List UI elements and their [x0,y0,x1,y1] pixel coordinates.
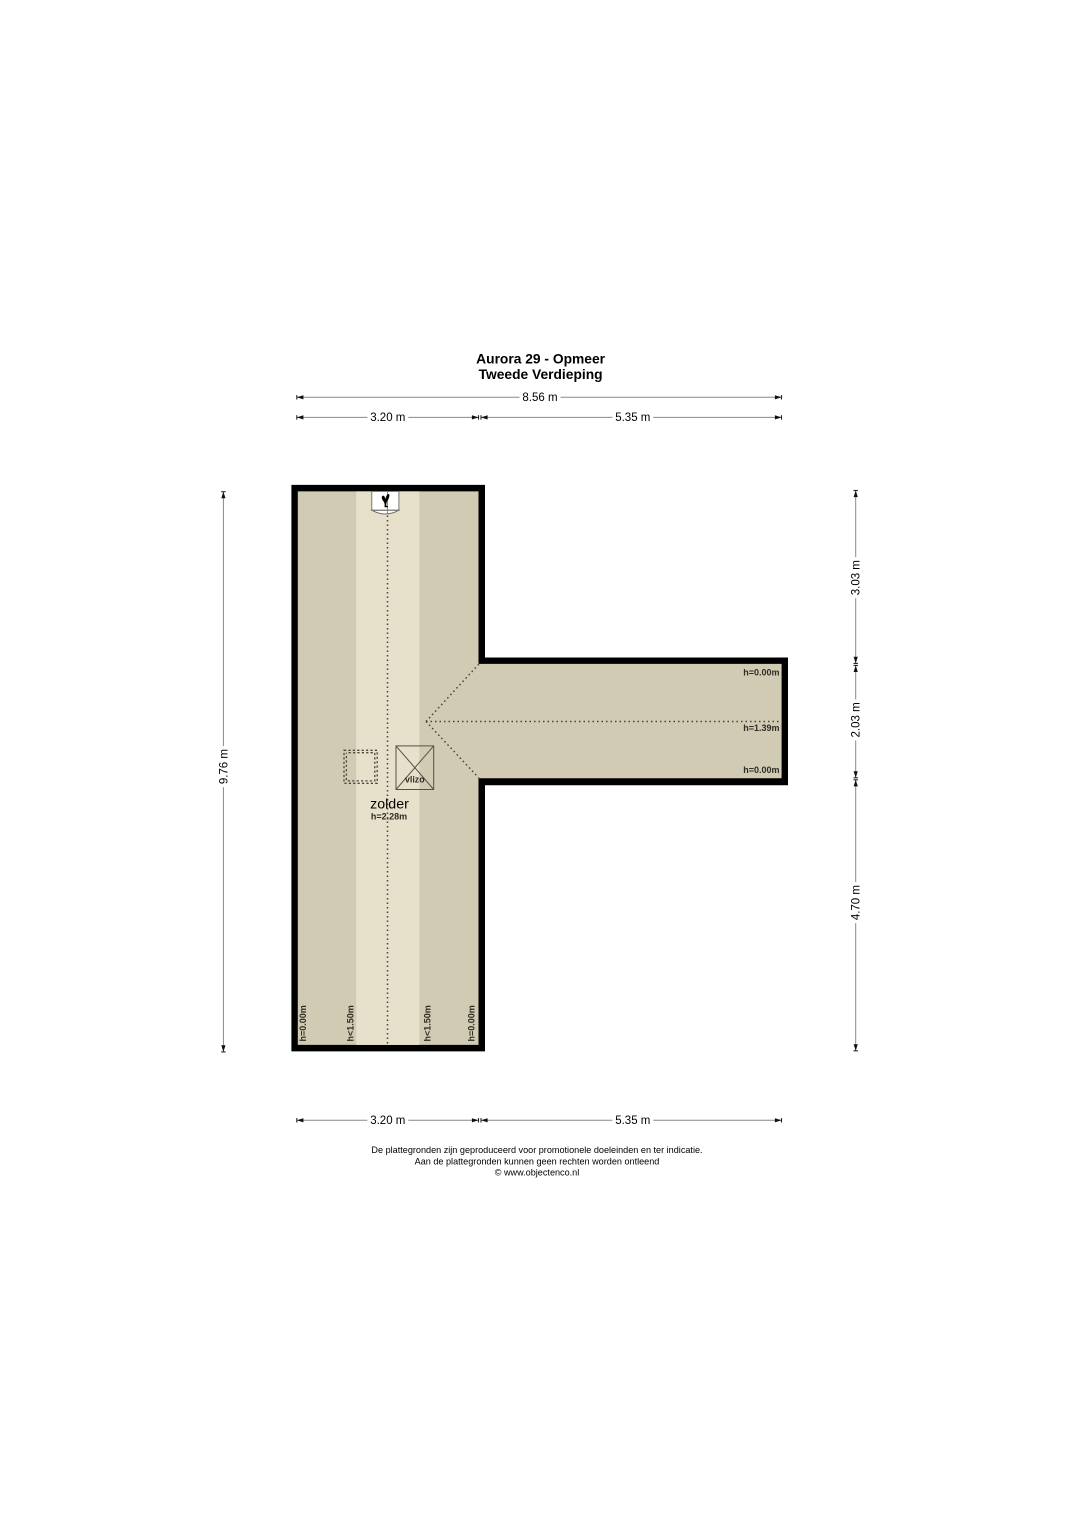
svg-text:8.56 m: 8.56 m [522,392,557,404]
svg-text:h<1.50m: h<1.50m [423,1005,433,1041]
svg-text:Aurora 29 - Opmeer: Aurora 29 - Opmeer [476,351,605,366]
svg-text:3.20 m: 3.20 m [370,412,405,424]
svg-text:De plattegronden zijn geproduc: De plattegronden zijn geproduceerd voor … [371,1145,702,1155]
svg-text:h=0.00m: h=0.00m [743,765,779,775]
svg-text:vlizo: vlizo [405,775,425,785]
svg-text:5.35 m: 5.35 m [615,412,650,424]
svg-text:2.03 m: 2.03 m [851,702,863,737]
svg-text:© www.objectenco.nl: © www.objectenco.nl [495,1168,580,1178]
svg-text:h=0.00m: h=0.00m [743,667,779,677]
svg-text:Tweede Verdieping: Tweede Verdieping [479,367,603,382]
svg-text:zolder: zolder [370,797,409,813]
svg-text:h<1.50m: h<1.50m [345,1005,355,1041]
svg-text:h=1.39m: h=1.39m [743,723,779,733]
svg-text:3.20 m: 3.20 m [370,1115,405,1127]
svg-text:5.35 m: 5.35 m [615,1115,650,1127]
svg-text:h=0.00m: h=0.00m [298,1005,308,1041]
svg-text:Aan de plattegronden kunnen ge: Aan de plattegronden kunnen geen rechten… [415,1157,660,1167]
svg-text:h=0.00m: h=0.00m [467,1005,477,1041]
svg-text:9.76 m: 9.76 m [218,749,230,784]
svg-text:h=2.28m: h=2.28m [371,812,407,822]
svg-text:4.70 m: 4.70 m [851,885,863,920]
svg-text:3.03 m: 3.03 m [851,560,863,595]
